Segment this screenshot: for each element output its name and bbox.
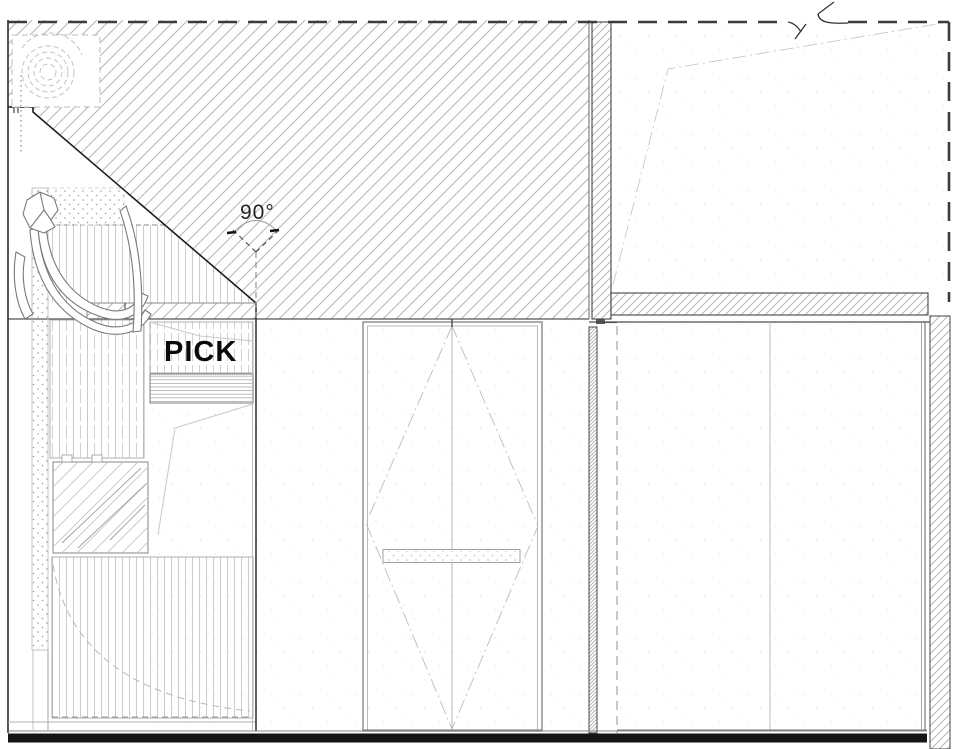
glass-panel (53, 455, 148, 553)
pick-label: PICK (164, 336, 237, 368)
drawing-canvas: PICK 90° (0, 0, 960, 749)
board-panel-mid-left (50, 320, 144, 458)
pick-panel: PICK (150, 322, 253, 373)
base-band-bar (8, 734, 927, 743)
push-plate (383, 550, 520, 563)
glass-clip (92, 455, 102, 462)
glass-clip (62, 455, 72, 462)
right-jamb-column (930, 316, 950, 749)
board-panel-bottom (52, 557, 253, 718)
slat-band (150, 374, 253, 403)
cad-drawing-page: PICK 90° (0, 0, 960, 749)
mullion-post (589, 327, 597, 733)
